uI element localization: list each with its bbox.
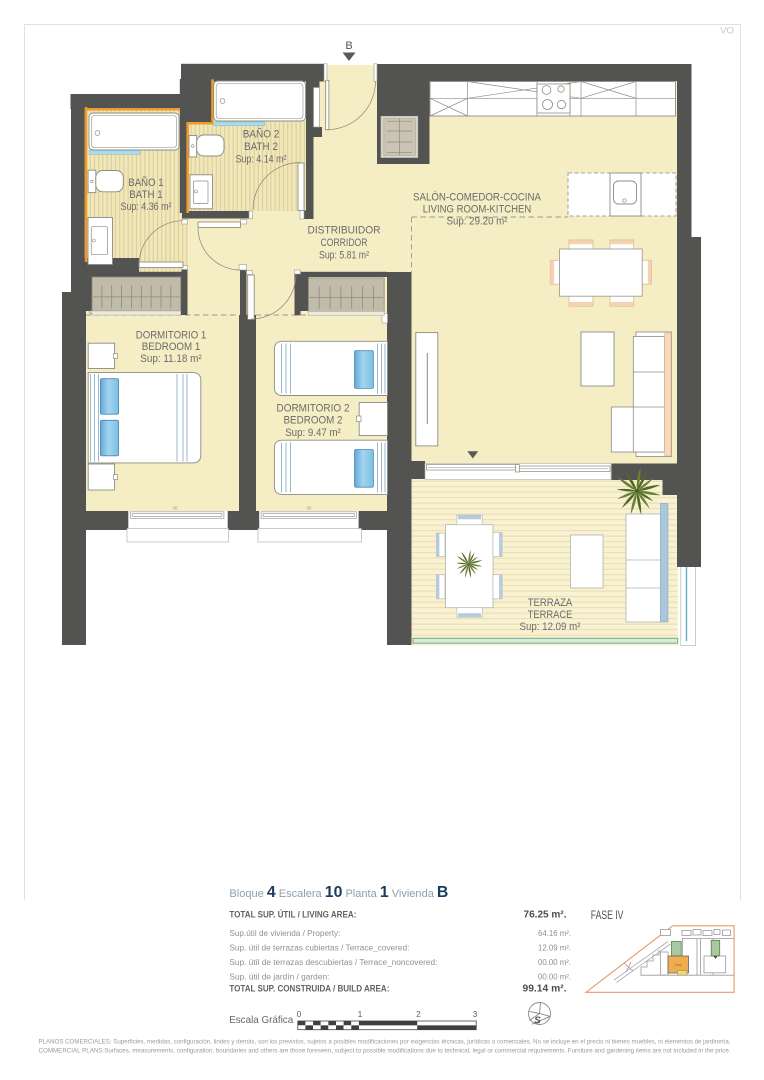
svg-text:Sup: 11.18 m²: Sup: 11.18 m² bbox=[140, 353, 202, 365]
svg-text:BAÑO 2: BAÑO 2 bbox=[243, 128, 280, 141]
svg-text:64.16 m².: 64.16 m². bbox=[538, 929, 571, 938]
svg-text:TOTAL SUP. CONSTRUIDA / BUILD: TOTAL SUP. CONSTRUIDA / BUILD AREA: bbox=[229, 984, 389, 994]
svg-text:TERRACE: TERRACE bbox=[528, 609, 573, 621]
svg-text:DORMITORIO 1: DORMITORIO 1 bbox=[136, 329, 207, 341]
svg-text:BATH 2: BATH 2 bbox=[244, 141, 278, 153]
svg-text:3: 3 bbox=[473, 1010, 478, 1019]
svg-text:VO: VO bbox=[720, 26, 734, 37]
svg-text:PLANOS COMERCIALES: Superficie: PLANOS COMERCIALES: Superficies, medidas… bbox=[39, 1039, 731, 1046]
svg-text:LIVING ROOM-KITCHEN: LIVING ROOM-KITCHEN bbox=[423, 204, 532, 216]
svg-text:1: 1 bbox=[358, 1010, 363, 1019]
svg-text:Sup. útil de terrazas cubierta: Sup. útil de terrazas cubiertas / Terrac… bbox=[229, 944, 409, 953]
svg-text:SALÓN-COMEDOR-COCINA: SALÓN-COMEDOR-COCINA bbox=[413, 190, 542, 203]
svg-text:BEDROOM 2: BEDROOM 2 bbox=[284, 415, 343, 427]
svg-text:CORRIDOR: CORRIDOR bbox=[321, 237, 368, 249]
svg-text:DORMITORIO 2: DORMITORIO 2 bbox=[277, 403, 350, 415]
svg-text:12.09 m².: 12.09 m². bbox=[538, 944, 571, 953]
svg-text:COMMERCIAL PLANS:Surfaces, mea: COMMERCIAL PLANS:Surfaces, measurements,… bbox=[39, 1047, 731, 1054]
svg-text:TERRAZA: TERRAZA bbox=[528, 597, 573, 609]
svg-text:36: 36 bbox=[306, 506, 312, 511]
svg-text:36: 36 bbox=[172, 506, 178, 511]
svg-text:BAÑO 1: BAÑO 1 bbox=[128, 176, 163, 189]
svg-text:TOTAL SUP. ÚTIL / LIVING AREA:: TOTAL SUP. ÚTIL / LIVING AREA: bbox=[229, 908, 356, 919]
svg-text:Sup: 5.81 m²: Sup: 5.81 m² bbox=[319, 250, 369, 262]
svg-text:Sup: 9.47 m²: Sup: 9.47 m² bbox=[285, 427, 341, 439]
svg-text:Sup: 12.09 m²: Sup: 12.09 m² bbox=[520, 621, 581, 633]
svg-text:Escala Gráfica: Escala Gráfica bbox=[229, 1014, 293, 1026]
svg-text:00.00 m².: 00.00 m². bbox=[538, 958, 571, 967]
svg-text:Sup: 4.14 m²: Sup: 4.14 m² bbox=[236, 154, 287, 166]
svg-text:2: 2 bbox=[416, 1010, 421, 1019]
svg-text:S: S bbox=[534, 1016, 541, 1027]
svg-text:Sup: 29.20 m²: Sup: 29.20 m² bbox=[447, 216, 508, 228]
svg-text:FASE IV: FASE IV bbox=[591, 910, 624, 922]
svg-text:0: 0 bbox=[297, 1010, 302, 1019]
svg-text:00.00 m².: 00.00 m². bbox=[538, 973, 571, 982]
svg-text:Bloque 4 Escalera 10 Planta 1: Bloque 4 Escalera 10 Planta 1 Vivienda B bbox=[229, 884, 448, 901]
svg-text:BATH 1: BATH 1 bbox=[129, 189, 163, 201]
svg-text:Sup: 4.36 m²: Sup: 4.36 m² bbox=[121, 201, 172, 213]
svg-text:Sup. útil de jardín / garden:: Sup. útil de jardín / garden: bbox=[229, 973, 329, 982]
svg-text:76.25 m².: 76.25 m². bbox=[524, 909, 567, 920]
svg-text:99.14 m².: 99.14 m². bbox=[523, 984, 567, 995]
svg-text:BEDROOM 1: BEDROOM 1 bbox=[142, 341, 201, 353]
svg-text:Sup. útil de terrazas descubie: Sup. útil de terrazas descubiertas / Ter… bbox=[229, 958, 437, 967]
svg-text:Sup.útil de vivienda / Propert: Sup.útil de vivienda / Property: bbox=[229, 929, 340, 938]
svg-text:B: B bbox=[345, 40, 352, 52]
svg-text:DISTRIBUIDOR: DISTRIBUIDOR bbox=[308, 225, 381, 237]
svg-text:VT01: VT01 bbox=[674, 963, 682, 967]
